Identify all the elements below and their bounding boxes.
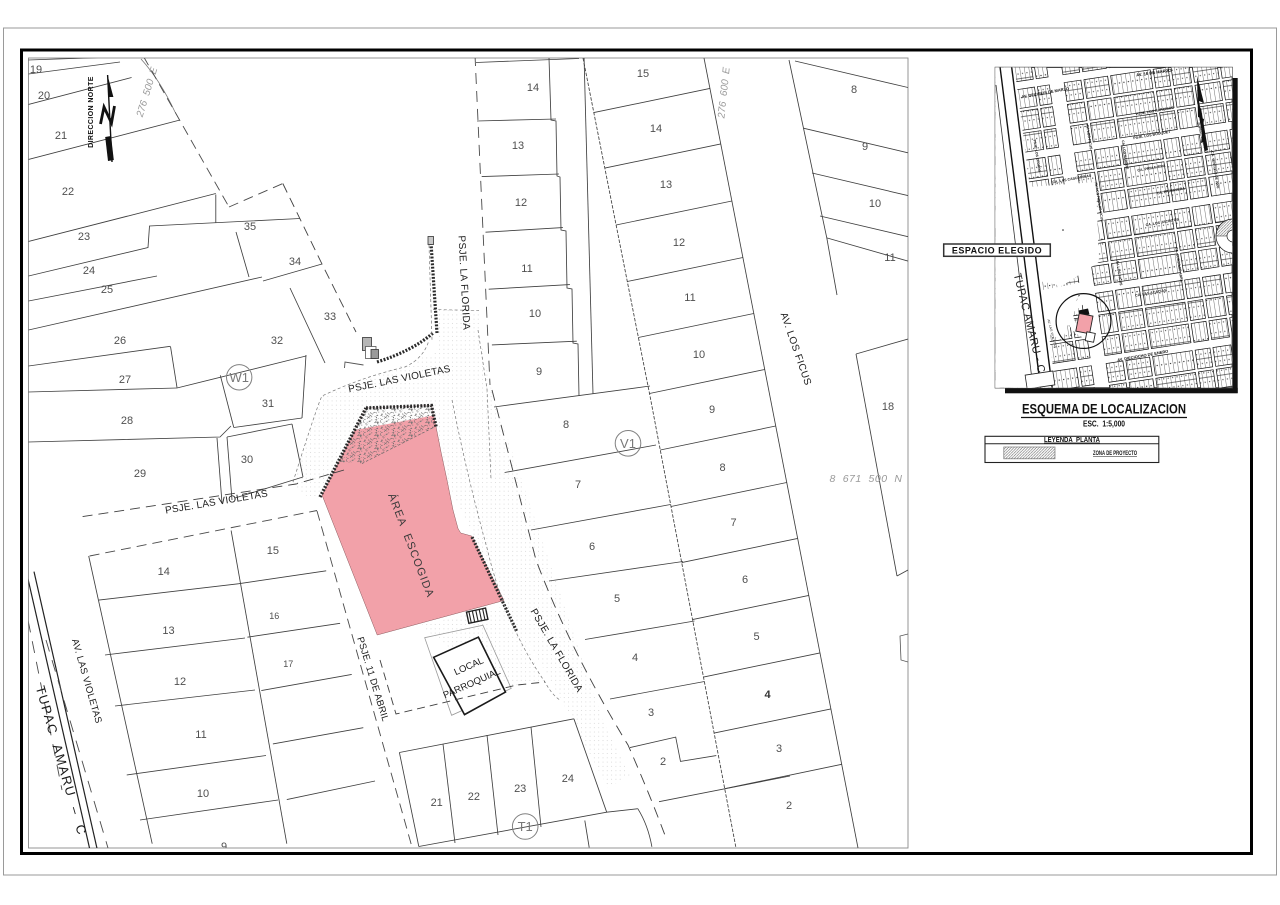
svg-text:6: 6 [589,541,595,553]
svg-text:23: 23 [78,231,90,243]
svg-text:5: 5 [614,593,620,605]
svg-text:19: 19 [30,64,42,76]
svg-text:16: 16 [269,611,279,621]
svg-text:29: 29 [134,468,146,480]
svg-text:8: 8 [851,84,857,96]
svg-text:12: 12 [673,237,685,249]
svg-text:10: 10 [693,349,705,361]
svg-text:9: 9 [862,141,868,153]
svg-text:3: 3 [776,743,782,755]
svg-text:9: 9 [536,366,542,378]
svg-text:21: 21 [431,797,443,809]
svg-text:11: 11 [521,263,532,275]
svg-text:22: 22 [468,791,480,803]
svg-text:11: 11 [884,252,895,264]
svg-text:24: 24 [83,265,95,277]
svg-text:DIRECCION NORTE: DIRECCION NORTE [88,76,95,148]
svg-text:32: 32 [271,335,283,347]
svg-text:7: 7 [575,479,581,491]
svg-text:10: 10 [869,198,881,210]
svg-text:7: 7 [730,517,736,529]
svg-text:34: 34 [289,256,301,268]
svg-text:12: 12 [515,197,527,209]
svg-text:ZONA DE PROYECTO: ZONA DE PROYECTO [1093,451,1137,457]
svg-text:15: 15 [267,545,279,557]
svg-text:4: 4 [764,689,771,701]
svg-text:12: 12 [174,676,186,688]
svg-text:10: 10 [197,788,209,800]
svg-text:21: 21 [55,130,67,142]
svg-text:11: 11 [195,729,206,741]
svg-text:18: 18 [882,401,894,413]
svg-text:8 671 500 N: 8 671 500 N [830,473,903,485]
svg-text:25: 25 [101,284,113,296]
svg-text:3: 3 [648,707,654,719]
svg-text:14: 14 [650,123,662,135]
svg-text:30: 30 [241,454,253,466]
svg-text:35: 35 [244,221,256,233]
svg-text:27: 27 [119,374,131,386]
svg-text:13: 13 [162,625,174,637]
svg-text:14: 14 [527,82,539,94]
svg-text:8: 8 [719,462,725,474]
svg-text:13: 13 [512,140,524,152]
svg-text:24: 24 [562,773,574,785]
svg-text:22: 22 [62,186,74,198]
svg-text:2: 2 [660,756,666,768]
svg-text:6: 6 [742,574,748,586]
svg-text:8: 8 [563,419,569,431]
svg-text:31: 31 [262,398,274,410]
svg-text:10: 10 [529,308,541,320]
svg-text:23: 23 [514,783,526,795]
svg-text:2: 2 [786,800,792,812]
svg-text:28: 28 [121,415,133,427]
svg-text:11: 11 [684,292,695,304]
svg-text:T1: T1 [518,819,533,834]
svg-text:14: 14 [158,566,170,578]
svg-text:17: 17 [283,659,293,669]
svg-text:ESQUEMA DE LOCALIZACION: ESQUEMA DE LOCALIZACION [1022,402,1186,417]
svg-text:V1: V1 [620,436,636,451]
svg-text:9: 9 [709,404,715,416]
svg-text:20: 20 [38,90,50,102]
svg-text:13: 13 [660,179,672,191]
svg-text:5: 5 [753,631,759,643]
svg-text:W1: W1 [229,370,249,385]
svg-text:4: 4 [632,652,638,664]
svg-text:ESPACIO ELEGIDO: ESPACIO ELEGIDO [952,245,1042,255]
svg-text:15: 15 [637,68,649,80]
svg-text:26: 26 [114,335,126,347]
svg-text:33: 33 [324,311,336,323]
svg-text:ESC. 1:5,000: ESC. 1:5,000 [1083,419,1125,429]
